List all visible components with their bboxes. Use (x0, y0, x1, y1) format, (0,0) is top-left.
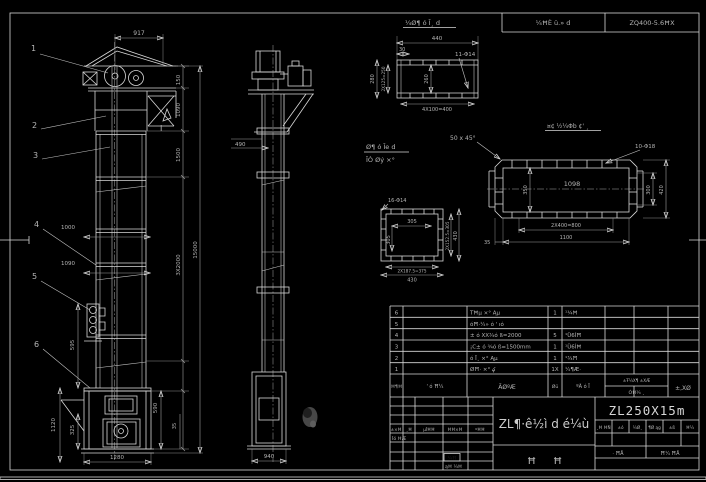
dim-917: 917 (133, 30, 145, 37)
drawing-svg[interactable]: ¼ĦÈ ü.» d ZQ400-5.6ĦX (0, 0, 706, 482)
bom-material: ¼¶Æ· (565, 367, 581, 373)
dim-10-phi18: 10-Φ18 (635, 144, 656, 150)
bom-no: 5 (395, 322, 399, 328)
dim-305v: 305 (386, 235, 392, 245)
bom-qty: 1 (553, 356, 557, 362)
dim-325: 325 (70, 424, 76, 435)
bom-header-code: ' ó Ħ¼ (426, 383, 443, 390)
sheets-total-label: · ĦÅ (612, 450, 624, 457)
dim-1098: 1098 (564, 180, 581, 188)
detail-head-flange: ¼Ø¶ ó Ī¸ d 440 30 260 11-Φ14 280 2X125=2… (370, 18, 478, 113)
dim-1100: 1100 (560, 235, 573, 241)
bom-row: 6 TĦµ ×° Ąµ 1 ¹¾Ħ (395, 310, 578, 317)
callout-4: 4 (34, 220, 39, 229)
dim-2x125: 2X125=250 (381, 66, 386, 91)
bom-row: 3 ¡C± ó ¾ó ß=1500mm 1 ¹Ü6ÍĦ (395, 344, 582, 351)
reducer-table-label: ¼ĦÈ ü.» d (536, 18, 571, 27)
dim-350: 350 (523, 185, 529, 195)
dim-2x400: 2X400=800 (551, 223, 581, 229)
dim-3x2000: 3X2000 (176, 254, 182, 276)
dim-305h: 305 (407, 219, 417, 225)
bom-no: 6 (395, 311, 399, 317)
bom-material: ¹Ü6ÍĦ (565, 344, 581, 351)
detail-plate-title: ¤¢ ½¼Φb ¢' ¸ (547, 123, 589, 130)
bom-name: ¡C± ó ¾ó ß=1500mm (470, 344, 531, 351)
side-view: 490 940 (231, 45, 318, 464)
bom-qty: 1 (553, 345, 557, 351)
dim-16-phi14: 16-Φ14 (388, 198, 406, 204)
row-standard-label: ąĦ ¼Ħ (445, 464, 462, 470)
rev-col-zone: µĪĦĦ (423, 427, 435, 432)
title-block: ±×Ħ ¸Ħ µĪĦĦ ĦĦ×Ħ ºĦĦ Īó ĦÆ ¼Ħ ąĦ ¼Ħ ZL¶·… (390, 397, 699, 470)
bom-name: óĦ·¼» ó ' ıó (470, 321, 504, 328)
bom-header-weight2: ÓĦ¼ ¸ (628, 389, 644, 396)
tb-label: ¸Ħ ĦÑ (596, 425, 610, 430)
callout-6: 6 (34, 340, 39, 349)
rev-col-doc: ĦĦ×Ħ (447, 427, 462, 432)
tb-label: Ħ¼ (686, 425, 694, 430)
drawing-subtitle-glyph: Ħ (527, 456, 536, 467)
reducer-model-value: ZQ400-5.6ĦX (629, 19, 675, 27)
rev-col-count: ¸Ħ (406, 427, 412, 432)
bom-no: 2 (395, 356, 399, 362)
bom-qty: 5 (553, 333, 557, 339)
bom-header-notes: ±,XØ (675, 385, 691, 392)
reducer-table: ¼ĦÈ ü.» d ZQ400-5.6ĦX (502, 13, 699, 32)
bom-name: ó Ī¸ ×° Ąµ (470, 355, 498, 362)
drawing-subtitle-glyph: Ħ (553, 456, 562, 467)
bom-name: ± ó XX¾ó ß=2000 (470, 332, 522, 339)
detail-plate-flange: ¤¢ ½¼Φb ¢' ¸ 50 x 45° 1098 350 10-Φ18 30… (450, 123, 670, 246)
bom-name: TĦµ ×° Ąµ (469, 311, 501, 317)
dim-30: 30 (399, 47, 405, 53)
bom-qty: 1 (553, 311, 557, 317)
bom-qty: 1X (551, 367, 558, 373)
dim-1500: 1500 (176, 148, 182, 162)
dim-4x100: 4X100=400 (422, 107, 452, 113)
window-bottom-strip (0, 477, 706, 479)
bom-material: ¹¾Ħ (565, 355, 578, 362)
callout-1: 1 (31, 44, 36, 53)
dim-15000: 15000 (193, 241, 199, 259)
dim-440: 440 (432, 36, 443, 42)
sheet-number-label: Ħ¼ ĦÅ (660, 450, 680, 457)
bom-header-no: Ħ¶Ħ (391, 384, 402, 390)
front-view: 1 2 3 4 5 6 917 (31, 30, 203, 465)
dim-430r: 430 (453, 231, 459, 241)
side-view-dimensions: 490 940 (231, 139, 286, 464)
tb-label: ±ß (669, 425, 676, 430)
dim-1090: 1090 (176, 103, 182, 117)
callout-2: 2 (32, 121, 37, 130)
dim-490: 490 (235, 142, 246, 148)
screen-artifact (303, 407, 318, 428)
dim-2x152: 2X152.5=305 (445, 221, 450, 250)
bom-no: 3 (395, 345, 399, 351)
detail-square-label2: ĪÒ Øý ×° (366, 155, 395, 164)
tb-label: ¶Ø ąg (648, 425, 661, 430)
dim-1000: 1000 (61, 225, 75, 231)
drawing-title: ZL¶·ê½ì d é¼ù (499, 417, 590, 431)
boot-section (61, 388, 154, 453)
detail-top-title: ¼Ø¶ ó Ī¸ d (405, 18, 440, 27)
rev-col-date: ºĦĦ (475, 427, 485, 432)
callout-5: 5 (32, 272, 37, 281)
bom-no: 1 (395, 367, 399, 373)
bolt-hole-ticks (381, 209, 443, 261)
callout-3: 3 (33, 151, 38, 160)
sheet-frame (0, 13, 706, 479)
dim-1090b: 1090 (61, 261, 75, 267)
callout-balloons: 1 2 3 4 5 6 (31, 44, 110, 388)
bom-name: ØĦ· ×° ؼ (470, 366, 496, 373)
highlighted-cell-text: ¼Ħ (448, 456, 457, 462)
tb-label: ±ó (617, 425, 624, 430)
detail-square-label1: Ø¶ ó Īe d (366, 142, 395, 151)
dim-35: 35 (172, 423, 178, 429)
bom-header-material: ºÃ ó Ī (576, 383, 590, 390)
bom-row: 1 ØĦ· ×° ؼ 1X ¼¶Æ· (395, 366, 581, 373)
dim-430b: 430 (407, 278, 417, 284)
chamfer-note: 50 x 45° (450, 135, 476, 142)
dim-11-phi14: 11-Φ14 (455, 52, 476, 58)
model-number: ZL250X15m (609, 403, 686, 418)
dim-300: 300 (646, 185, 652, 195)
dim-590: 590 (153, 402, 159, 413)
dim-940: 940 (264, 454, 275, 460)
bom-material: ¹¾Ħ (565, 310, 578, 317)
bom-no: 4 (395, 333, 399, 339)
rev-col-mark: ±×Ħ (391, 427, 402, 432)
dim-420: 420 (659, 185, 665, 195)
bom-row: 5 óĦ·¼» ó ' ıó (395, 321, 505, 328)
bom-header-weight: ±Ŧ¼X¶ ±XÆ (623, 378, 650, 383)
bom-header-qty: Øü (552, 383, 559, 390)
dim-260: 260 (424, 74, 430, 84)
detail-square-flange: Ø¶ ó Īe d ĪÒ Øý ×° 16-Φ14 305 305 2X152.… (364, 142, 459, 284)
chain-detail (84, 304, 105, 341)
row-design-label: Īó ĦÆ (392, 435, 407, 442)
dim-595: 595 (70, 339, 76, 350)
dim-35-plate: 35 (484, 240, 490, 246)
head-section (83, 47, 178, 131)
section-mark-I: I (160, 124, 162, 133)
bolt-hole-ticks (410, 60, 462, 98)
dim-1280: 1280 (110, 455, 124, 461)
bom-material: ¹Ü6ÍĦ (565, 332, 581, 339)
dim-1120: 1120 (51, 418, 57, 432)
cad-drawing-canvas[interactable]: ¼ĦÈ ü.» d ZQ400-5.6ĦX (0, 0, 706, 482)
dim-2x187: 2X187.5=375 (397, 269, 426, 274)
dim-280: 280 (370, 74, 376, 84)
bom-row: 2 ó Ī¸ ×° Ąµ 1 ¹¾Ħ (395, 355, 578, 362)
bom-row: 4 ± ó XX¾ó ß=2000 5 ¹Ü6ÍĦ (395, 332, 582, 339)
bom-header-name: ÃØºÆ (498, 384, 516, 391)
casing-column (96, 42, 146, 460)
tb-label: ¼Ø¸ (633, 425, 642, 430)
dim-150: 150 (176, 74, 182, 85)
